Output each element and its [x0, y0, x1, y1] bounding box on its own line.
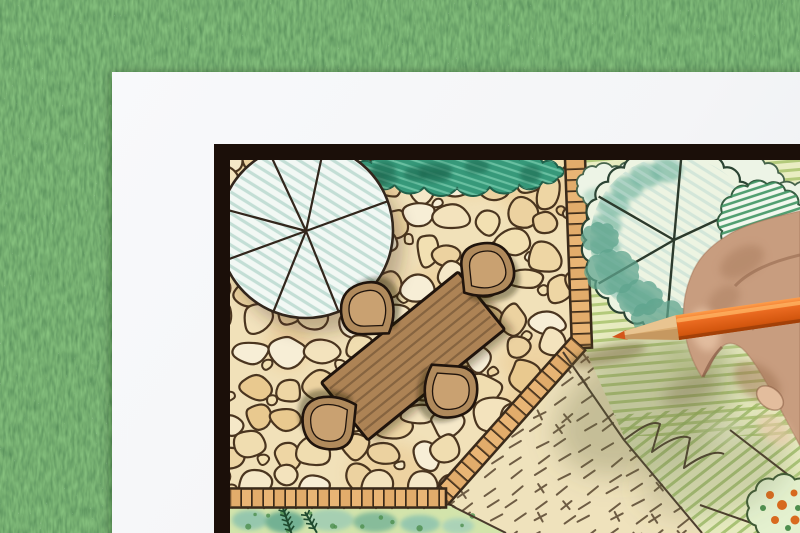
garden-plan-photo	[0, 0, 800, 533]
scene	[0, 0, 800, 533]
